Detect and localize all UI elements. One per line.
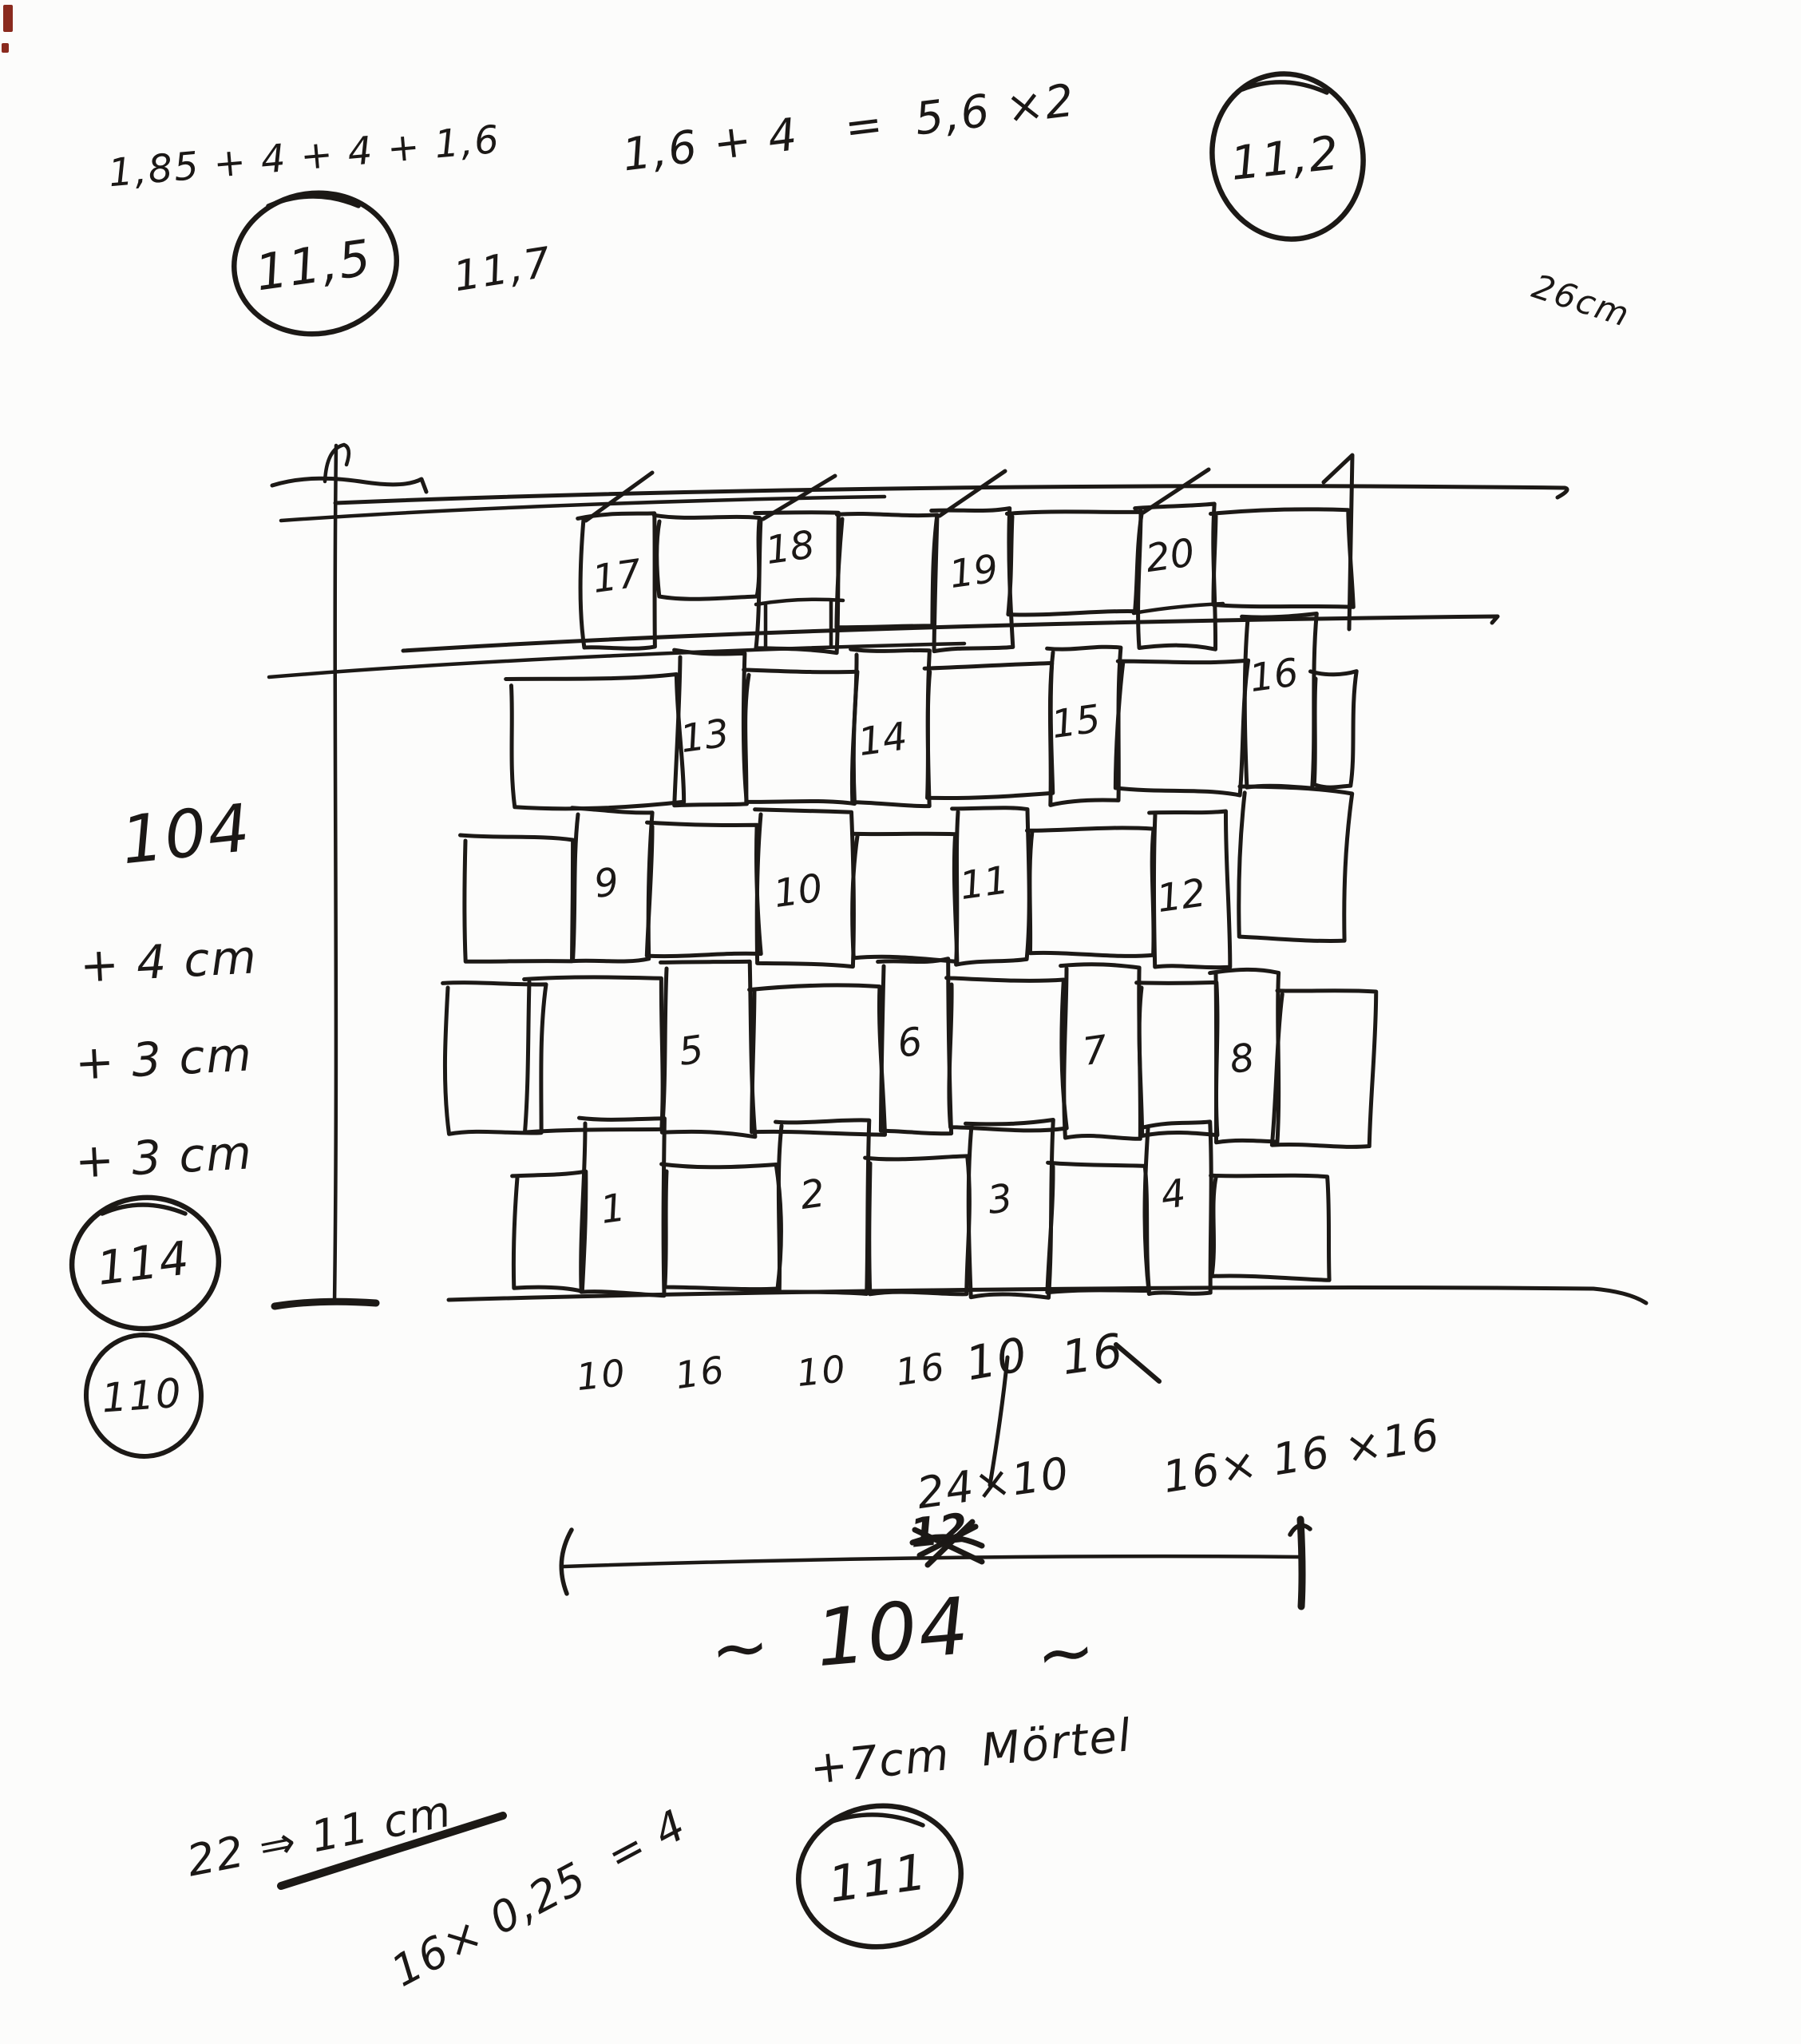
circled-value-114: 114 bbox=[94, 1230, 193, 1296]
slab-brick-outline bbox=[461, 835, 573, 961]
crossed-out-12: 12 bbox=[908, 1504, 971, 1556]
brick-label: 18 bbox=[763, 522, 817, 573]
slab-brick-outline bbox=[1007, 512, 1142, 615]
circled-value-110: 110 bbox=[100, 1370, 184, 1422]
brick-outline bbox=[661, 961, 755, 1137]
slab-brick-outline bbox=[1047, 1163, 1150, 1292]
slab-brick-outline bbox=[1211, 509, 1354, 607]
brick-label: 8 bbox=[1227, 1035, 1257, 1083]
scanned-sketch-page: { "sketch": { "top": { "calc_left": "1,8… bbox=[0, 0, 1801, 2044]
plus-3cm-a: + 3 cm bbox=[73, 1027, 254, 1091]
slab-brick-outline bbox=[662, 1164, 782, 1289]
slab-brick-outline bbox=[947, 978, 1067, 1131]
brick-label: 14 bbox=[856, 714, 910, 765]
height-measure-line bbox=[272, 445, 426, 1306]
brick-label: 3 bbox=[985, 1175, 1015, 1223]
brick-label: 10 bbox=[771, 866, 825, 917]
brick-label: 17 bbox=[590, 551, 645, 602]
slab-brick-outline bbox=[1114, 656, 1249, 795]
slab-brick-outline bbox=[647, 822, 761, 956]
brick-label: 4 bbox=[1158, 1171, 1189, 1218]
slab-brick-outline bbox=[506, 673, 684, 811]
brick-label: 15 bbox=[1049, 696, 1103, 747]
brick-label: 9 bbox=[592, 859, 622, 907]
slab-brick-outline bbox=[1272, 988, 1376, 1148]
tilde-right: ~ bbox=[1032, 1608, 1101, 1696]
brick-outlines bbox=[443, 504, 1377, 1297]
brick-label: 13 bbox=[678, 711, 732, 762]
slab-brick-outline bbox=[1211, 1175, 1330, 1280]
slab-brick-outline bbox=[740, 669, 858, 805]
slab-brick-outline bbox=[1027, 828, 1154, 956]
course-width-5: 16 bbox=[1059, 1323, 1128, 1385]
brick-label: 5 bbox=[676, 1027, 707, 1075]
brick-label: 7 bbox=[1080, 1027, 1110, 1075]
tilde-left: ~ bbox=[707, 1604, 774, 1690]
plus-4cm: + 4 cm bbox=[78, 929, 259, 993]
slab-brick-outline bbox=[1137, 982, 1217, 1135]
brick-label: 6 bbox=[895, 1019, 925, 1067]
course-width-2: 10 bbox=[794, 1347, 849, 1395]
slab-brick-outline bbox=[1311, 671, 1357, 787]
dim-104: 104 bbox=[812, 1581, 973, 1685]
slab-brick-outline bbox=[853, 834, 957, 961]
brick-label: 16 bbox=[1247, 650, 1301, 701]
slab-brick-outline bbox=[924, 663, 1055, 798]
brick-label: 2 bbox=[798, 1171, 828, 1218]
slab-brick-outline bbox=[865, 1156, 970, 1294]
brick-label: 12 bbox=[1154, 870, 1209, 921]
brick-label: 20 bbox=[1143, 530, 1197, 581]
brick-label: 19 bbox=[947, 546, 1001, 597]
slab-brick-outline bbox=[837, 513, 937, 627]
circled-value-11-2: 11,2 bbox=[1228, 125, 1342, 191]
slab-brick-outline bbox=[1234, 786, 1352, 941]
brick-number-labels: 1234567891011121314151617181920 bbox=[590, 522, 1301, 1233]
height-104: 104 bbox=[117, 790, 255, 879]
plus-3cm-b: + 3 cm bbox=[73, 1125, 254, 1189]
slab-brick-outline bbox=[654, 515, 759, 599]
slab-brick-outline bbox=[750, 985, 885, 1135]
slab-brick-outline bbox=[513, 1171, 586, 1291]
course-width-1: 16 bbox=[673, 1348, 728, 1397]
brick-label: 11 bbox=[957, 858, 1011, 909]
course-width-4: 10 bbox=[962, 1327, 1032, 1391]
course-width-3: 16 bbox=[893, 1345, 948, 1394]
brick-label: 1 bbox=[598, 1185, 628, 1233]
course-width-0: 10 bbox=[574, 1351, 628, 1399]
